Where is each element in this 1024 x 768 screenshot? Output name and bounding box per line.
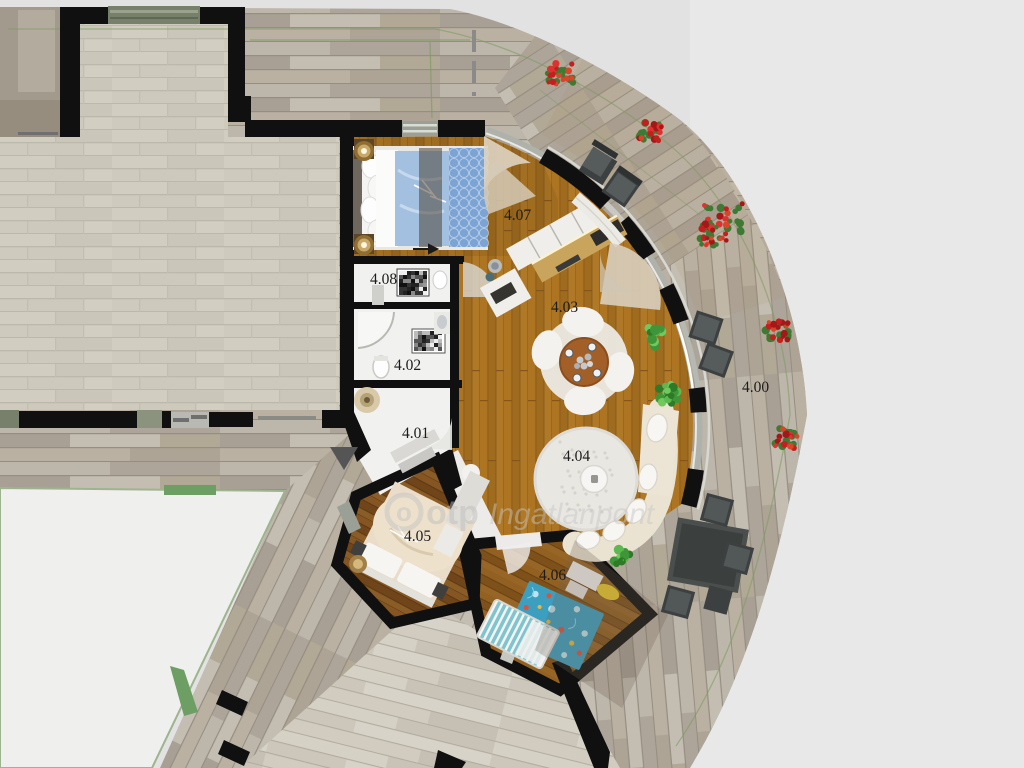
svg-text:4.02: 4.02 bbox=[394, 357, 421, 374]
svg-text:4.00: 4.00 bbox=[742, 379, 769, 396]
svg-text:o: o bbox=[396, 497, 412, 527]
svg-text:4.08: 4.08 bbox=[370, 271, 397, 288]
svg-text:4.06: 4.06 bbox=[539, 567, 566, 584]
svg-text:4.04: 4.04 bbox=[563, 448, 590, 465]
svg-text:otp: otp bbox=[426, 494, 479, 532]
svg-text:4.03: 4.03 bbox=[551, 299, 578, 316]
svg-text:4.01: 4.01 bbox=[402, 425, 429, 442]
svg-text:4.07: 4.07 bbox=[504, 207, 531, 224]
svg-text:Ingatlanpont: Ingatlanpont bbox=[489, 498, 656, 531]
